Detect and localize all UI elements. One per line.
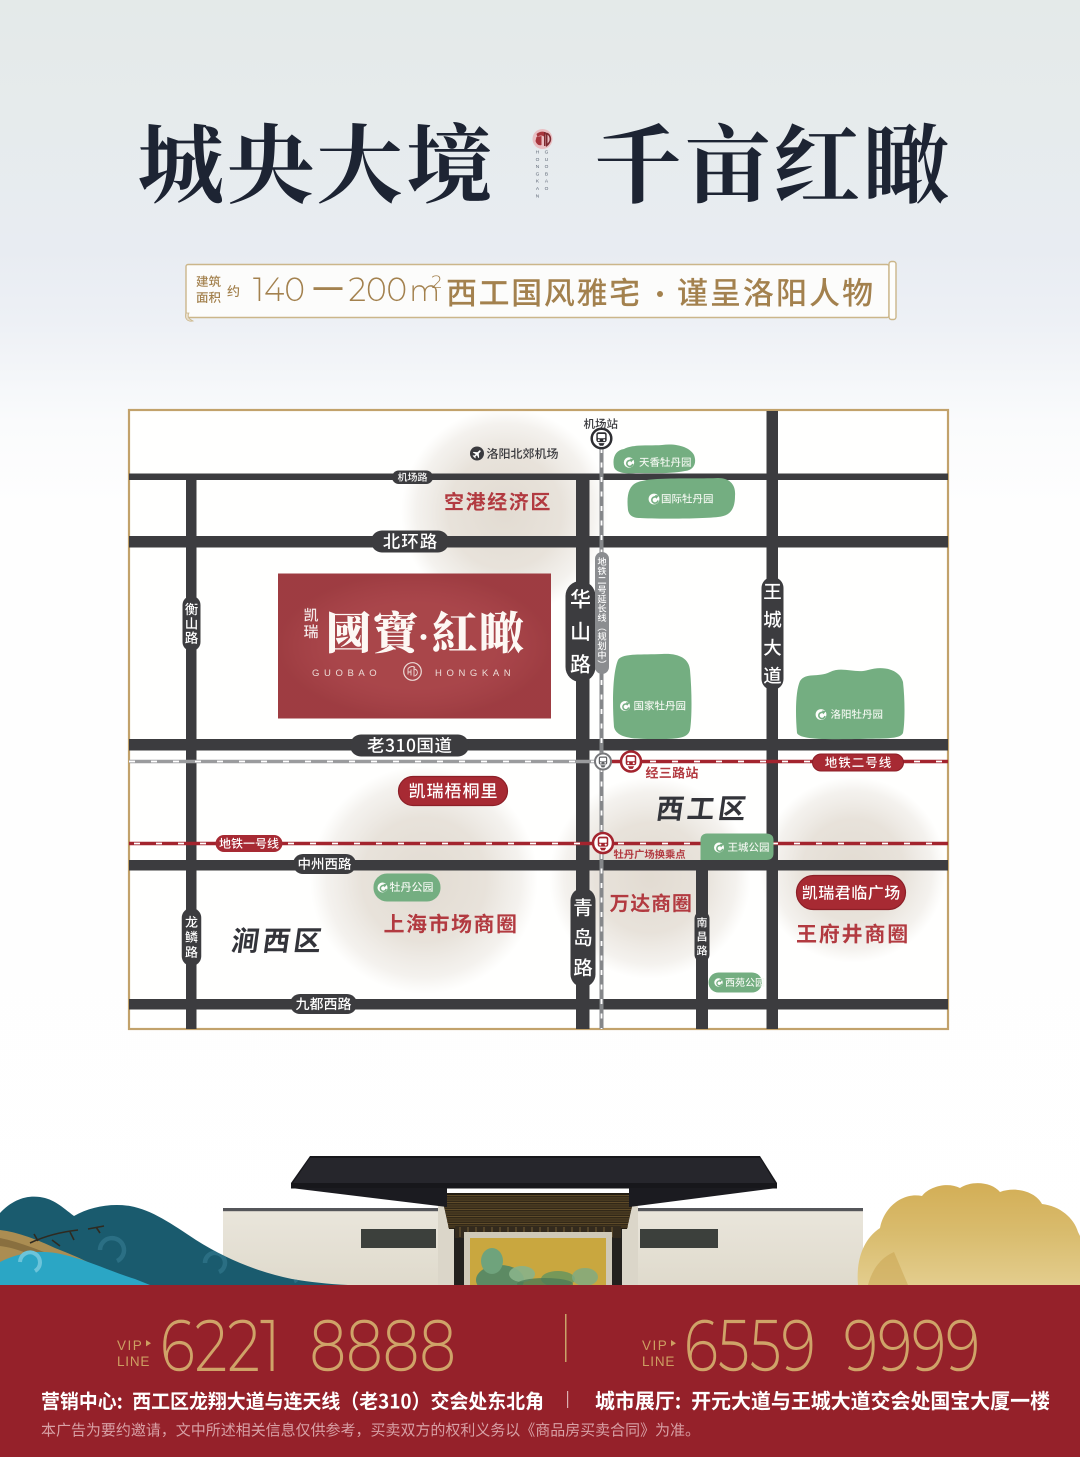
- svg-text:G: G: [536, 171, 540, 177]
- svg-text:LINE: LINE: [117, 1354, 150, 1369]
- svg-text:HONGKAN: HONGKAN: [435, 668, 515, 679]
- svg-text:LINE: LINE: [642, 1354, 675, 1369]
- svg-text:O: O: [536, 157, 540, 163]
- svg-text:N: N: [536, 164, 540, 170]
- svg-text:O: O: [545, 164, 549, 170]
- svg-text:G: G: [545, 150, 549, 156]
- svg-text:VIP: VIP: [117, 1338, 143, 1353]
- svg-text:B: B: [545, 171, 548, 177]
- svg-text:O: O: [545, 186, 549, 192]
- svg-text:H: H: [536, 150, 540, 156]
- svg-text:U: U: [545, 157, 549, 163]
- svg-text:N: N: [536, 193, 540, 199]
- svg-text:GUOBAO: GUOBAO: [312, 668, 381, 679]
- svg-text:VIP: VIP: [642, 1338, 668, 1353]
